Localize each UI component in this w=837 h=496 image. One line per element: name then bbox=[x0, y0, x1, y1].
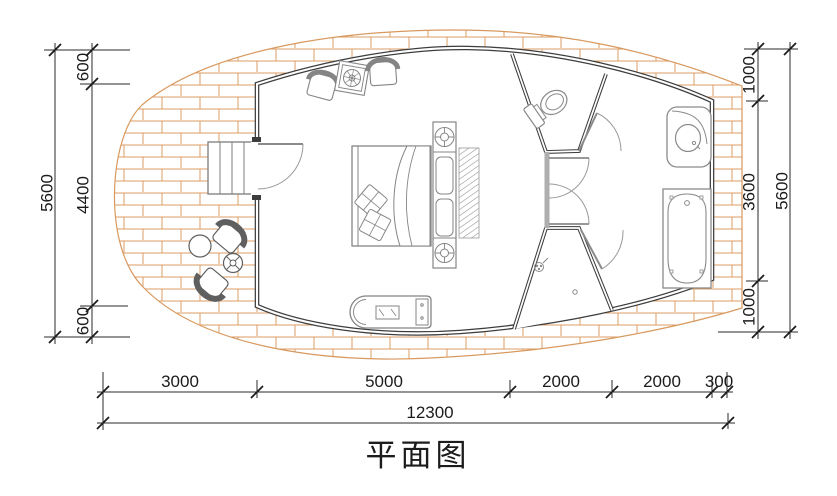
washbasin bbox=[667, 107, 711, 167]
lamp-icon bbox=[435, 128, 454, 147]
bathtub bbox=[663, 189, 711, 288]
dim-right-1: 3600 bbox=[739, 173, 758, 211]
dim-bottom-total: 12300 bbox=[406, 403, 453, 422]
dim-right-2: 1000 bbox=[739, 288, 758, 326]
dim-bottom-4: 300 bbox=[705, 372, 733, 391]
door-jamb-bottom bbox=[252, 195, 261, 200]
door-opening bbox=[251, 142, 263, 195]
tv-icon bbox=[376, 306, 399, 319]
louver-wardrobe bbox=[459, 148, 479, 238]
dim-bottom-3: 2000 bbox=[643, 372, 681, 391]
dim-bottom-2: 2000 bbox=[542, 372, 580, 391]
dim-right-0: 1000 bbox=[739, 56, 758, 94]
deck-small-table bbox=[224, 254, 243, 273]
floor-plan-page: 5600 600 4400 600 1000 3600 1000 5600 30… bbox=[0, 0, 837, 496]
dim-bottom-1: 5000 bbox=[365, 372, 403, 391]
drawing-title: 平面图 bbox=[366, 438, 471, 473]
floor-plan-drawing: 5600 600 4400 600 1000 3600 1000 5600 30… bbox=[0, 0, 837, 496]
tv-cabinet bbox=[350, 296, 431, 328]
corridor-wall-bar bbox=[545, 152, 550, 228]
dim-left-total: 5600 bbox=[37, 174, 56, 212]
dim-right-total: 5600 bbox=[772, 172, 791, 210]
entry-stairs bbox=[208, 142, 256, 194]
deck-round-table bbox=[189, 235, 211, 257]
door-jamb-top bbox=[252, 137, 261, 142]
lamp-icon bbox=[435, 244, 454, 263]
dim-left-2: 600 bbox=[73, 307, 92, 335]
side-table-plant bbox=[335, 61, 370, 96]
dim-left-0: 600 bbox=[73, 53, 92, 81]
dim-bottom-0: 3000 bbox=[161, 372, 199, 391]
armchair bbox=[367, 58, 399, 86]
dim-left-1: 4400 bbox=[73, 176, 92, 214]
double-bed bbox=[352, 146, 431, 246]
